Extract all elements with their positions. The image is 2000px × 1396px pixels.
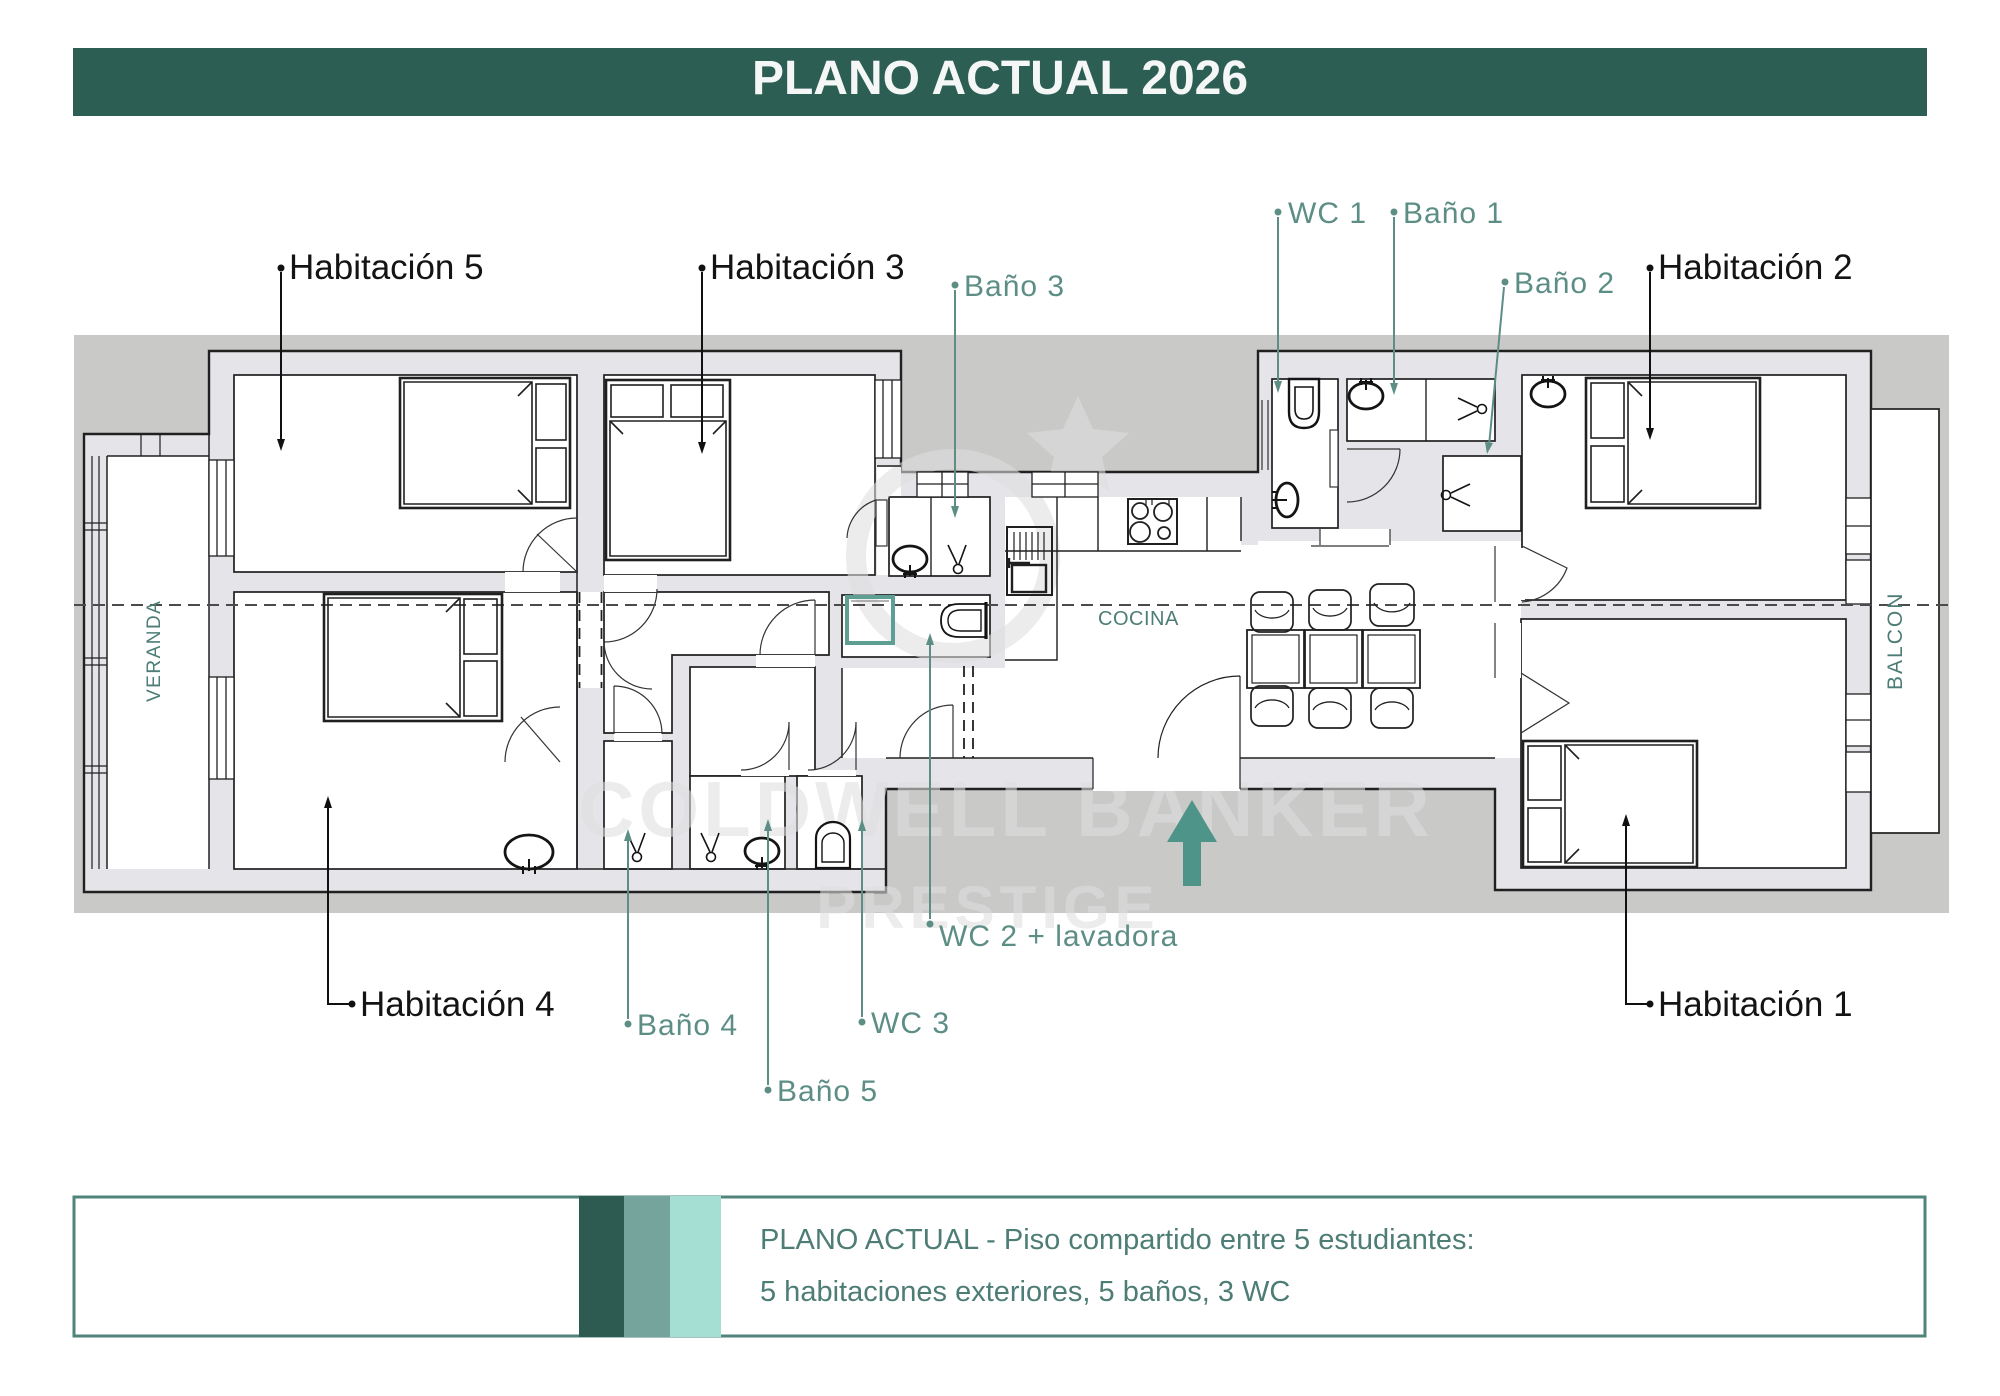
svg-text:PLANO ACTUAL 2026: PLANO ACTUAL 2026 <box>752 52 1248 105</box>
svg-text:Habitación 5: Habitación 5 <box>289 248 484 287</box>
svg-text:COCINA: COCINA <box>1098 608 1179 630</box>
svg-text:Baño 4: Baño 4 <box>637 1009 738 1042</box>
svg-text:Baño 2: Baño 2 <box>1514 267 1615 300</box>
svg-text:VERANDA: VERANDA <box>144 600 165 702</box>
svg-text:COLDWELL BANKER: COLDWELL BANKER <box>578 765 1434 853</box>
svg-text:Habitación 4: Habitación 4 <box>360 985 555 1024</box>
svg-text:PLANO ACTUAL - Piso compartido: PLANO ACTUAL - Piso compartido entre 5 e… <box>760 1224 1475 1256</box>
svg-text:WC 2 + lavadora: WC 2 + lavadora <box>939 920 1178 953</box>
svg-text:Baño 5: Baño 5 <box>777 1075 878 1108</box>
svg-text:Baño 3: Baño 3 <box>964 270 1065 303</box>
svg-text:WC 3: WC 3 <box>871 1007 950 1040</box>
svg-text:Habitación 1: Habitación 1 <box>1658 985 1853 1024</box>
svg-text:BALCON: BALCON <box>1884 592 1907 690</box>
svg-text:Baño 1: Baño 1 <box>1403 197 1504 230</box>
svg-text:WC 1: WC 1 <box>1288 197 1367 230</box>
svg-text:Habitación 2: Habitación 2 <box>1658 248 1853 287</box>
svg-text:Habitación 3: Habitación 3 <box>710 248 905 287</box>
svg-text:5 habitaciones exteriores, 5 b: 5 habitaciones exteriores, 5 baños, 3 WC <box>760 1276 1290 1308</box>
